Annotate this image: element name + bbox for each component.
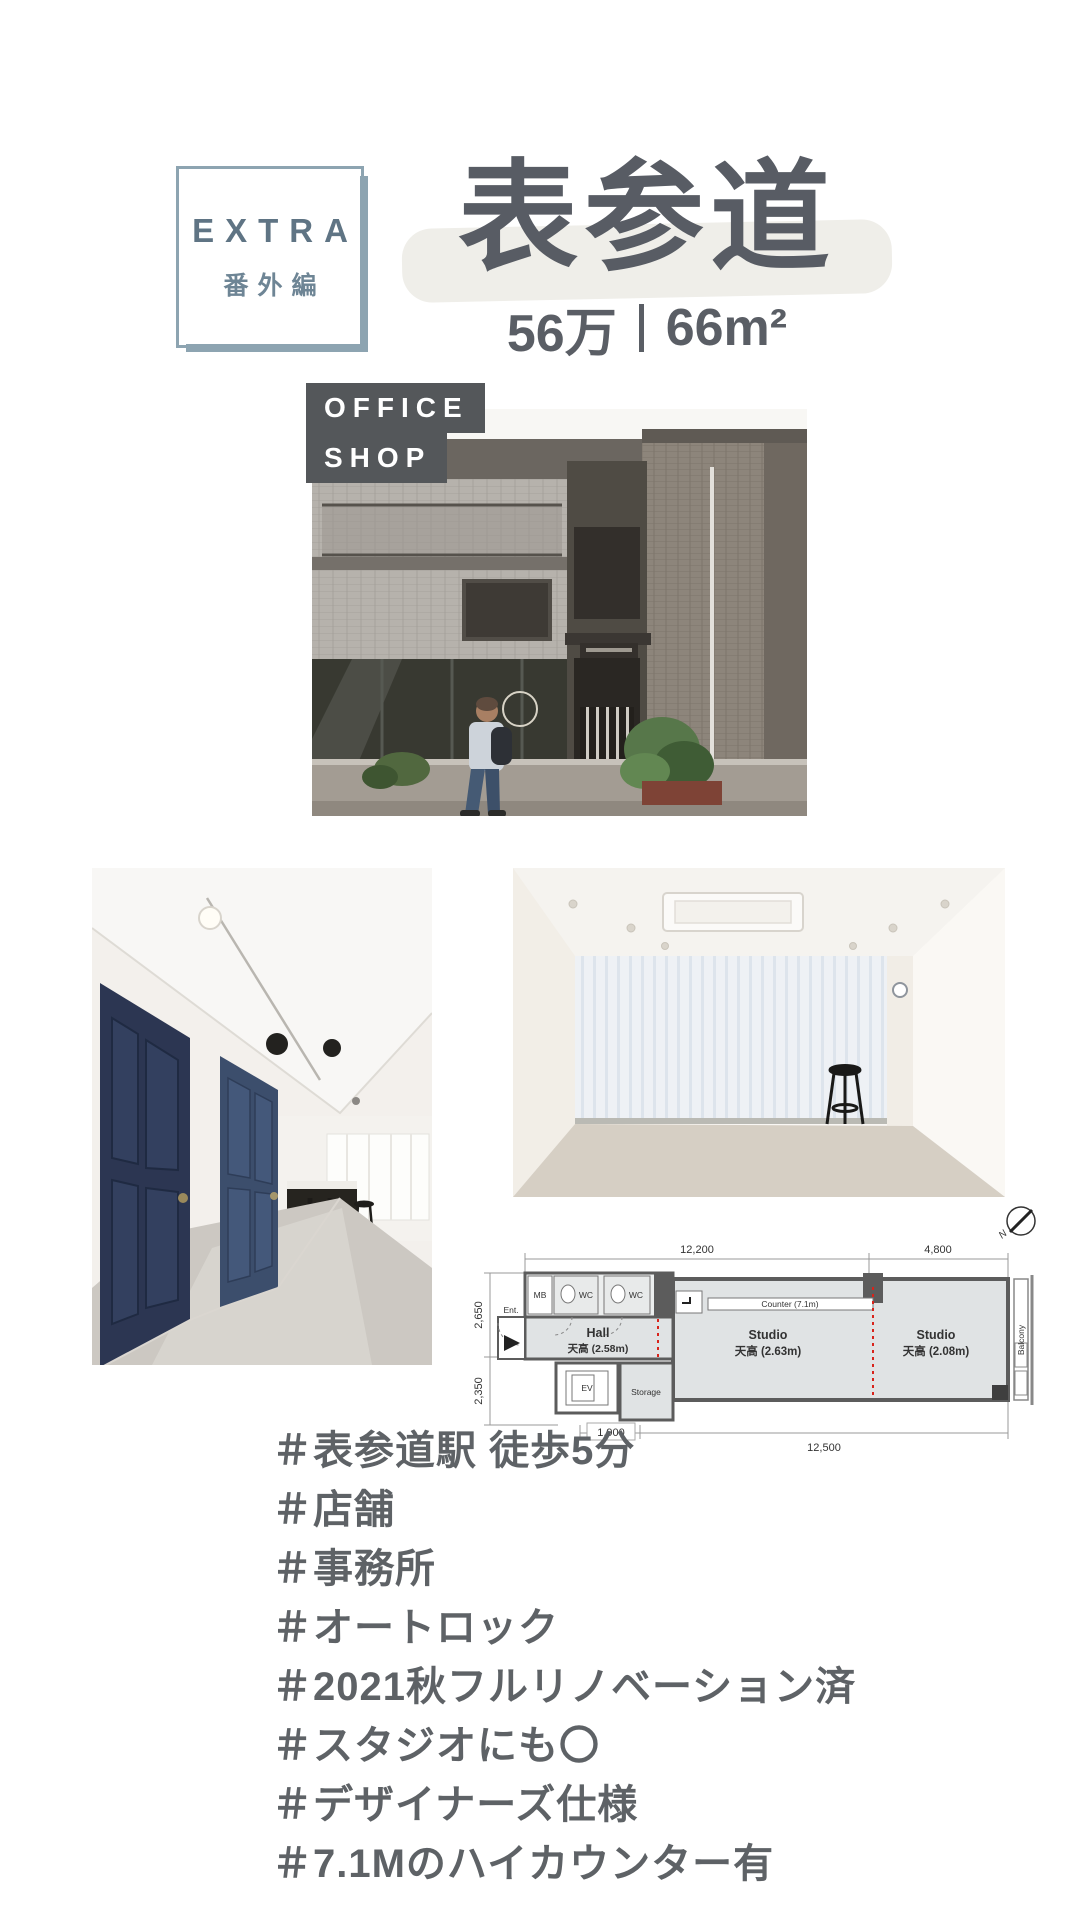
hashtag-item: ＃事務所 [272,1548,856,1590]
door-knob [178,1193,188,1203]
hall-ceiling-height: 天高 (2.58m) [568,1342,629,1355]
hashtag-item: ＃7.1Mのハイカウンター有 [272,1843,856,1885]
room-label-mb: MB [534,1290,547,1300]
room-label-balcony: Balcony [1016,1324,1026,1355]
photo-type-shop: SHOP [306,433,447,483]
photo-type-label: OFFICE SHOP [306,383,485,483]
area-value: 66m² [666,298,787,358]
navy-door-front [100,983,190,1365]
studio-interior-photo [513,868,1005,1197]
hashtag-item: ＃店舗 [272,1489,856,1531]
room-label-storage: Storage [631,1387,661,1397]
planter [642,781,722,805]
room-label-ent: Ent. [503,1305,518,1315]
window-blinds [575,956,887,1124]
badge-title: EXTRA [181,212,359,250]
hashtag-item: ＃デザイナーズ仕様 [272,1784,856,1826]
dim-left-lower: 2,350 [473,1377,485,1405]
listing-flyer-page: EXTRA 番外編 表参道 56万 66m² [0,0,1080,1920]
dim-top-main: 12,200 [680,1244,714,1256]
navy-door-back [220,1056,278,1308]
hashtag-item: ＃オートロック [272,1607,856,1649]
hashtag-item: ＃2021秋フルリノベーション済 [272,1666,856,1708]
price-area-row: 56万 66m² [402,300,892,356]
dim-top-right: 4,800 [924,1244,952,1256]
badge-subtitle: 番外編 [214,266,325,302]
compass-icon: N [997,1207,1035,1241]
hashtag-item: ＃表参道駅 徒歩5分 [272,1430,856,1472]
hashtag-list: ＃表参道駅 徒歩5分 ＃店舗 ＃事務所 ＃オートロック ＃2021秋フルリノベー… [272,1430,856,1885]
floorplan: N 12,200 4,800 2,650 2,350 1,900 12,500 [468,1195,1068,1460]
room-label-wc-left: WC [579,1290,593,1300]
right-column [887,956,913,1126]
wall-clock-icon [893,983,907,997]
room-label-studio-sub: Studio [917,1328,956,1342]
compass-n-label: N [997,1228,1010,1242]
room-label-ev: EV [581,1383,593,1393]
counter-label: Counter (7.1m) [761,1299,818,1309]
ac-vent [663,893,803,931]
extra-badge: EXTRA 番外編 [176,166,364,348]
room-label-hall: Hall [587,1326,610,1340]
hashtag-item: ＃スタジオにも〇 [272,1725,856,1767]
dim-left-upper: 2,650 [473,1301,485,1329]
room-label-studio-main: Studio [749,1328,788,1342]
hallway-photo [92,868,432,1365]
photo-type-office: OFFICE [306,383,485,433]
studio-sub-ceiling-height: 天高 (2.08m) [903,1344,970,1358]
price-area-divider [639,304,644,352]
price-value: 56万 [507,291,617,366]
studio-main-ceiling-height: 天高 (2.63m) [735,1344,802,1358]
page-title: 表参道 [402,152,892,284]
room-label-wc-right: WC [629,1290,643,1300]
door-knob [270,1192,278,1200]
